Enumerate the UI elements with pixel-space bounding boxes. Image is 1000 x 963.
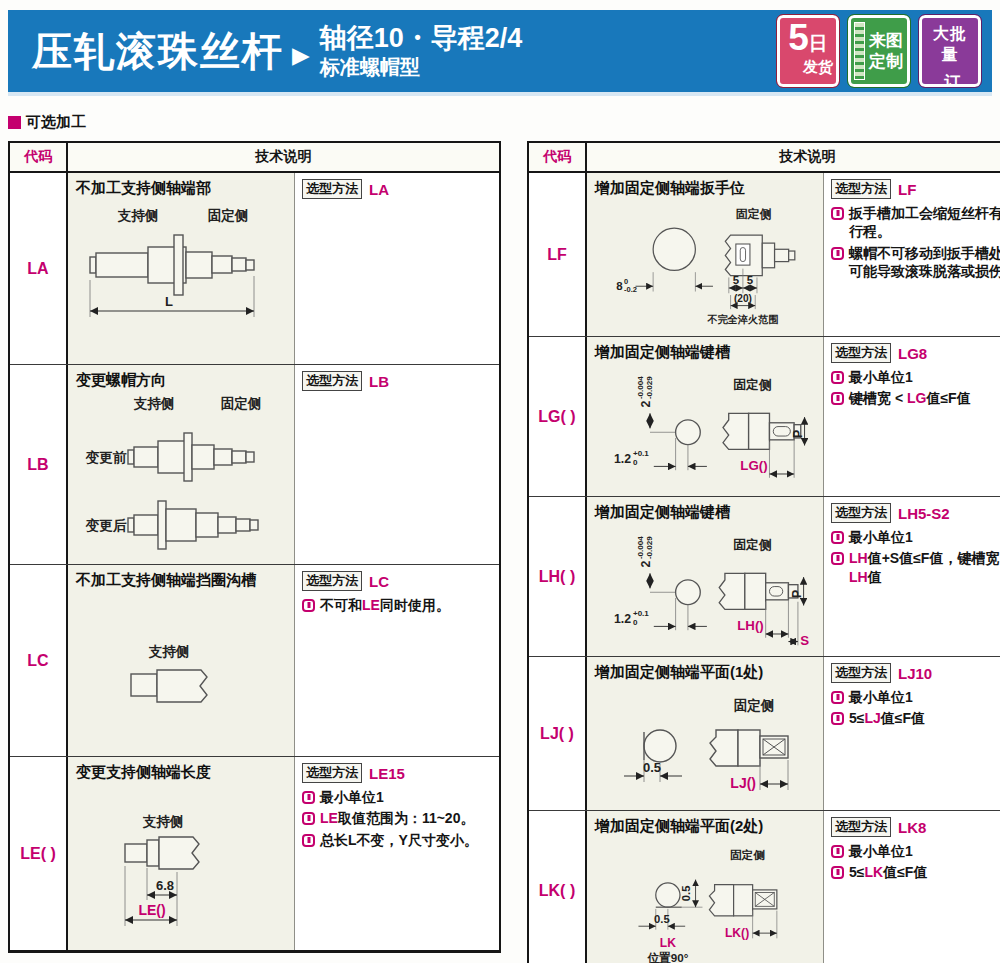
table-row-lj: LJ( ) 增加固定侧轴端平面(1处) 固定侧 0.5 (529, 657, 1000, 811)
note-line: 最小单位1 (831, 842, 1000, 860)
note-line: 最小单位1 (831, 528, 1000, 546)
diagram-lh: 固定侧 2 -0.004 -0.029 1.2 +0.1 0 (595, 524, 815, 652)
badge-bulk-line1: 大批量 (925, 24, 975, 66)
badge-bulk-line2: 订购 (944, 72, 975, 88)
note-icon (831, 552, 844, 565)
svg-text:0.5: 0.5 (642, 760, 660, 775)
svg-text:1.2: 1.2 (614, 452, 631, 466)
method-value: LC (369, 573, 389, 590)
header-banner: 压轧滚珠丝杆 ▶ 轴径10・导程2/4 标准螺帽型 5 日 发货 来图 定制 (8, 10, 992, 96)
method-label: 选型方法 (302, 571, 362, 591)
arrow-right-icon: ▶ (292, 42, 310, 69)
svg-text:L: L (165, 294, 173, 309)
method-label: 选型方法 (302, 179, 362, 199)
svg-text:不完全淬火范围: 不完全淬火范围 (706, 313, 778, 325)
badge-bulk-order: 大批量 订购 (918, 14, 982, 88)
code-cell: LK( ) (529, 811, 587, 963)
notes-cell: 选型方法LE15 最小单位1 LE取值范围为：11~20。 总长L不变，Y尺寸变… (295, 757, 499, 950)
row-title: 增加固定侧轴端键槽 (595, 343, 815, 362)
svg-text:LK(): LK() (724, 926, 748, 940)
svg-text:LK: LK (659, 936, 675, 950)
diagram-le: 支持侧 6.8 LE() (81, 804, 281, 942)
svg-text:固定侧: 固定侧 (735, 207, 771, 221)
svg-text:1.2: 1.2 (614, 612, 631, 626)
note-icon (302, 791, 315, 804)
note-line: 最小单位1 (831, 688, 1000, 706)
note-line: 5≤LK值≤F值 (831, 863, 1000, 881)
desc-cell: 增加固定侧轴端平面(1处) 固定侧 0.5 L (587, 657, 824, 810)
notes-cell: 选型方法LC 不可和LE同时使用。 (295, 565, 499, 756)
method-value: LA (369, 181, 389, 198)
notes-cell: 选型方法LH5-S2 最小单位1 LH值+S值≤F值，键槽宽 < LH值 (824, 497, 1000, 656)
svg-text:8: 8 (616, 280, 623, 292)
cart-icon (925, 86, 942, 88)
svg-text:(20): (20) (733, 293, 751, 304)
desc-header: 技术说明 (68, 143, 499, 171)
note-line: 不可和LE同时使用。 (302, 596, 492, 614)
row-title: 增加固定侧轴端扳手位 (595, 179, 815, 198)
svg-text:变更前: 变更前 (85, 449, 127, 465)
method-value: LG8 (898, 345, 927, 362)
table-row-lg: LG( ) 增加固定侧轴端键槽 固定侧 2 -0.004 -0.029 (529, 337, 1000, 497)
method-label: 选型方法 (831, 817, 891, 837)
desc-cell: 增加固定侧轴端键槽 固定侧 2 -0.004 -0.029 1.2 (587, 497, 824, 656)
left-table: 代码 技术说明 LA 不加工支持侧轴端部 支持侧 固定侧 (8, 141, 501, 953)
notes-cell: 选型方法LF 扳手槽加工会缩短丝杆有效行程。 螺帽不可移动到扳手槽处，可能导致滚… (824, 173, 1000, 336)
notes-cell: 选型方法LA (295, 173, 499, 364)
code-cell: LH( ) (529, 497, 587, 656)
diagram-lg: 固定侧 2 -0.004 -0.029 1.2 +0.1 0 (595, 364, 815, 492)
table-row-lf: LF 增加固定侧轴端扳手位 固定侧 8 0 -0.2 (529, 173, 1000, 337)
note-icon (302, 599, 315, 612)
code-cell: LF (529, 173, 587, 336)
row-title: 变更支持侧轴端长度 (76, 763, 286, 782)
svg-text:固定侧: 固定侧 (729, 848, 764, 861)
svg-text:固定侧: 固定侧 (208, 208, 249, 223)
svg-text:-0.029: -0.029 (645, 376, 654, 399)
svg-text:6.8: 6.8 (156, 878, 174, 893)
desc-cell: 增加固定侧轴端扳手位 固定侧 8 0 -0.2 (587, 173, 824, 336)
svg-text:0: 0 (633, 458, 638, 467)
note-icon (831, 247, 844, 260)
method-value: LK8 (898, 819, 926, 836)
badge-custom-line1: 来图 (869, 30, 903, 51)
table-row-lk: LK( ) 增加固定侧轴端平面(2处) 固定侧 0.5 0.5 LK (529, 811, 1000, 963)
right-table: 代码 技术说明 LF 增加固定侧轴端扳手位 固定侧 8 0 -0 (527, 141, 1000, 963)
table-row-le: LE( ) 变更支持侧轴端长度 支持侧 6.8 LE() (10, 757, 499, 950)
code-cell: LG( ) (529, 337, 587, 496)
section-square-icon (8, 116, 21, 129)
notes-cell: 选型方法LK8 最小单位1 5≤LK值≤F值 (824, 811, 1000, 963)
catalog-page: 压轧滚珠丝杆 ▶ 轴径10・导程2/4 标准螺帽型 5 日 发货 来图 定制 (0, 0, 1000, 963)
note-icon (831, 712, 844, 725)
diagram-lf: 固定侧 8 0 -0.2 (598, 200, 813, 332)
page-title: 压轧滚珠丝杆 (32, 24, 284, 79)
svg-text:支持侧: 支持侧 (142, 814, 184, 829)
svg-text:-0.029: -0.029 (645, 536, 654, 559)
svg-text:LE(): LE() (138, 902, 165, 918)
note-icon (302, 834, 315, 847)
method-value: LF (898, 181, 916, 198)
note-line: 键槽宽 < LG值≤F值 (831, 389, 1000, 407)
subtitle-spec: 轴径10・导程2/4 (320, 24, 523, 54)
svg-text:P: P (791, 430, 805, 438)
code-header: 代码 (10, 143, 68, 171)
svg-text:2: 2 (639, 401, 653, 408)
note-line: 螺帽不可移动到扳手槽处，可能导致滚珠脱落或损伤。 (831, 244, 1000, 281)
note-icon (831, 531, 844, 544)
code-cell: LE( ) (10, 757, 68, 950)
row-title: 增加固定侧轴端键槽 (595, 503, 815, 522)
note-line: 5≤LJ值≤F值 (831, 709, 1000, 727)
method-label: 选型方法 (831, 503, 891, 523)
note-icon (831, 866, 844, 879)
note-icon (831, 845, 844, 858)
svg-text:2: 2 (639, 561, 653, 568)
diagram-la: 支持侧 固定侧 L (76, 200, 286, 328)
desc-cell: 变更支持侧轴端长度 支持侧 6.8 LE() (68, 757, 295, 950)
desc-cell: 不加工支持侧轴端部 支持侧 固定侧 L (68, 173, 295, 364)
method-value: LJ10 (898, 665, 932, 682)
code-header: 代码 (529, 143, 587, 171)
row-title: 不加工支持侧轴端部 (76, 179, 286, 198)
method-label: 选型方法 (302, 763, 362, 783)
note-line: 最小单位1 (831, 368, 1000, 386)
svg-text:位置90°: 位置90° (646, 951, 688, 963)
table-row-lb: LB 变更螺帽方向 支持侧 固定侧 变更前 变更后 (10, 365, 499, 565)
note-icon (831, 207, 844, 220)
method-label: 选型方法 (302, 371, 362, 391)
desc-cell: 变更螺帽方向 支持侧 固定侧 变更前 变更后 (68, 365, 295, 564)
note-line: LE取值范围为：11~20。 (302, 809, 492, 827)
subtitle-type: 标准螺帽型 (320, 56, 523, 78)
svg-text:固定侧: 固定侧 (733, 377, 772, 392)
svg-text:LJ(): LJ() (730, 775, 756, 791)
badge-custom-line2: 定制 (869, 51, 903, 72)
note-icon (302, 812, 315, 825)
svg-text:支持侧: 支持侧 (148, 644, 190, 659)
method-label: 选型方法 (831, 343, 891, 363)
desc-cell: 增加固定侧轴端平面(2处) 固定侧 0.5 0.5 LK 位置90° (587, 811, 824, 963)
svg-text:LH(): LH() (737, 618, 764, 633)
svg-text:5: 5 (732, 274, 739, 286)
note-icon (831, 371, 844, 384)
code-cell: LJ( ) (529, 657, 587, 810)
row-title: 变更螺帽方向 (76, 371, 286, 390)
method-label: 选型方法 (831, 179, 891, 199)
code-cell: LB (10, 365, 68, 564)
svg-text:支持侧: 支持侧 (117, 208, 159, 223)
note-line: 最小单位1 (302, 788, 492, 806)
note-icon (831, 392, 844, 405)
diagram-lb: 支持侧 固定侧 变更前 变更后 (76, 392, 286, 560)
row-title: 不加工支持侧轴端挡圈沟槽 (76, 571, 286, 590)
method-value: LH5-S2 (898, 505, 950, 522)
badge-5day-number: 5 (788, 20, 809, 55)
row-title: 增加固定侧轴端平面(2处) (595, 817, 815, 836)
svg-text:0.5: 0.5 (654, 913, 670, 925)
notes-cell: 选型方法LJ10 最小单位1 5≤LJ值≤F值 (824, 657, 1000, 810)
left-table-header: 代码 技术说明 (10, 143, 499, 173)
desc-header: 技术说明 (587, 143, 1000, 171)
svg-text:支持侧: 支持侧 (133, 396, 175, 411)
svg-text:S: S (800, 633, 809, 648)
diagram-lk: 固定侧 0.5 0.5 LK 位置90° (598, 838, 813, 963)
table-row-la: LA 不加工支持侧轴端部 支持侧 固定侧 L (10, 173, 499, 365)
subtitle: 轴径10・导程2/4 标准螺帽型 (320, 24, 523, 79)
badge-custom-drawing: 来图 定制 (847, 14, 911, 88)
svg-text:变更后: 变更后 (85, 517, 127, 533)
svg-text:0.5: 0.5 (680, 886, 692, 902)
svg-text:LG(): LG() (740, 458, 767, 473)
section-optional-machining: 可选加工 (8, 113, 992, 132)
method-value: LB (369, 373, 389, 390)
diagram-lj: 固定侧 0.5 LJ() (598, 688, 813, 806)
badge-5day-unit: 日 (809, 31, 828, 57)
right-table-header: 代码 技术说明 (529, 143, 1000, 173)
ruler-icon (854, 22, 865, 80)
table-row-lc: LC 不加工支持侧轴端挡圈沟槽 支持侧 选型方法LC 不可和LE同时使用。 (10, 565, 499, 757)
badge-5day-shipping: 5 日 发货 (776, 14, 840, 88)
badge-5day-ship-label: 发货 (783, 58, 833, 77)
table-row-lh: LH( ) 增加固定侧轴端键槽 固定侧 2 -0.004 -0.029 (529, 497, 1000, 657)
method-label: 选型方法 (831, 663, 891, 683)
svg-text:0: 0 (633, 618, 638, 627)
svg-text:固定侧: 固定侧 (733, 537, 772, 552)
svg-text:5: 5 (746, 274, 753, 286)
desc-cell: 不加工支持侧轴端挡圈沟槽 支持侧 (68, 565, 295, 756)
note-line: LH值+S值≤F值，键槽宽 < LH值 (831, 549, 1000, 586)
svg-text:固定侧: 固定侧 (221, 396, 262, 411)
desc-cell: 增加固定侧轴端键槽 固定侧 2 -0.004 -0.029 1.2 (587, 337, 824, 496)
note-line: 扳手槽加工会缩短丝杆有效行程。 (831, 204, 1000, 241)
row-title: 增加固定侧轴端平面(1处) (595, 663, 815, 682)
svg-text:-0.2: -0.2 (624, 285, 637, 294)
method-value: LE15 (369, 765, 405, 782)
diagram-lc: 支持侧 (81, 626, 281, 746)
code-cell: LA (10, 173, 68, 364)
note-line: 总长L不变，Y尺寸变小。 (302, 831, 492, 849)
notes-cell: 选型方法LG8 最小单位1 键槽宽 < LG值≤F值 (824, 337, 1000, 496)
svg-text:P: P (790, 590, 804, 598)
note-icon (831, 691, 844, 704)
notes-cell: 选型方法LB (295, 365, 499, 564)
svg-text:固定侧: 固定侧 (733, 698, 774, 713)
badge-group: 5 日 发货 来图 定制 大批量 (776, 14, 982, 88)
section-label: 可选加工 (26, 113, 86, 132)
code-cell: LC (10, 565, 68, 756)
